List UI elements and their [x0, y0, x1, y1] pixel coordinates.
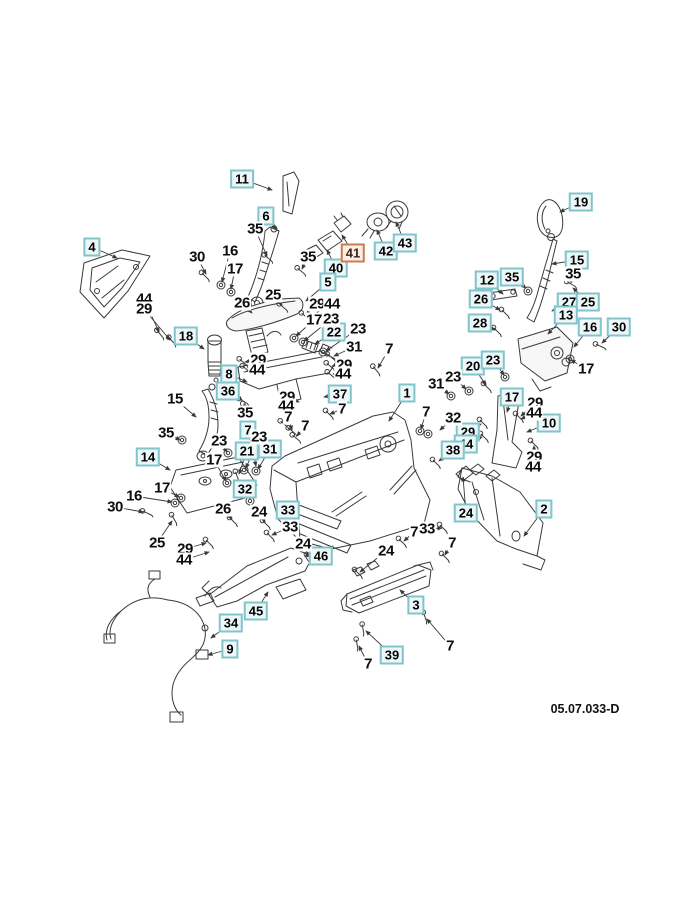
part-42-outline	[362, 213, 389, 238]
callout-26-label: 26	[233, 296, 251, 311]
callout-44-label: 44	[323, 297, 341, 312]
fastener-glyph	[263, 529, 276, 542]
callout-32-label: 32	[444, 411, 462, 426]
callout-33-link[interactable]: 33	[276, 501, 300, 520]
callout-33-label: 33	[281, 520, 299, 535]
callout-23-label: 23	[444, 370, 462, 385]
callout-7-label: 7	[384, 342, 394, 357]
part-9-harness-outline	[104, 571, 221, 722]
exploded-diagram	[0, 0, 688, 900]
fastener-glyph	[252, 467, 260, 475]
fastener-glyph	[501, 373, 509, 381]
callout-23-label: 23	[210, 434, 228, 449]
callout-38-link[interactable]: 38	[441, 441, 465, 460]
part-45-outline	[202, 548, 313, 607]
callout-2-link[interactable]: 2	[535, 500, 552, 519]
fastener-glyph	[395, 535, 408, 548]
fastener-glyph	[592, 341, 607, 351]
callout-44-label: 44	[525, 406, 543, 421]
fastener-glyph	[290, 334, 298, 342]
callout-44-label: 44	[175, 553, 193, 568]
callout-23-label: 23	[250, 430, 268, 445]
callout-12-link[interactable]: 12	[475, 271, 499, 290]
callout-24-link[interactable]: 24	[454, 504, 478, 523]
callout-24-label: 24	[250, 505, 268, 520]
callout-25-link[interactable]: 25	[576, 293, 600, 312]
callout-18-link[interactable]: 18	[174, 327, 198, 346]
fastener-glyph	[416, 427, 424, 435]
fastener-glyph	[370, 363, 383, 377]
fastener-glyph	[498, 306, 511, 319]
part-41-outline	[334, 213, 351, 232]
callout-1-link[interactable]: 1	[398, 384, 415, 403]
callout-35-label: 35	[564, 267, 582, 282]
fastener-glyph	[202, 536, 215, 549]
callout-31-label: 31	[427, 377, 445, 392]
callout-35-label: 35	[236, 406, 254, 421]
callout-17-label: 17	[226, 262, 244, 277]
callout-7-label: 7	[300, 419, 310, 434]
callout-23-label: 23	[322, 312, 340, 327]
fastener-glyph	[223, 479, 231, 487]
callout-3-link[interactable]: 3	[407, 596, 424, 615]
part-15-right-outline	[527, 229, 557, 322]
fastener-glyph	[447, 392, 455, 400]
callout-35-label: 35	[157, 426, 175, 441]
callout-30-label: 30	[106, 500, 124, 515]
callout-43-link[interactable]: 43	[393, 234, 417, 253]
fastener-glyph	[139, 508, 154, 518]
callout-25-label: 25	[148, 536, 166, 551]
callout-26-link[interactable]: 26	[469, 290, 493, 309]
callout-46-link[interactable]: 46	[309, 547, 333, 566]
callout-17-label: 17	[205, 453, 223, 468]
callout-5-link[interactable]: 5	[319, 273, 336, 292]
callout-29-label: 29	[135, 302, 153, 317]
callout-17-label: 17	[305, 313, 323, 328]
callout-17-label: 17	[577, 362, 595, 377]
callout-15-label: 15	[166, 392, 184, 407]
part-40-outline	[318, 231, 342, 251]
callout-24-label: 24	[294, 537, 312, 552]
callout-23-link[interactable]: 23	[481, 351, 505, 370]
callout-7-label: 7	[447, 536, 457, 551]
fastener-glyph	[171, 499, 179, 507]
callout-33-label: 33	[418, 522, 436, 537]
fastener-glyph	[524, 287, 532, 295]
callout-7-label: 7	[283, 410, 293, 425]
callout-35-link[interactable]: 35	[500, 268, 524, 287]
fastener-glyph	[353, 636, 360, 651]
callout-13-link[interactable]: 13	[554, 306, 578, 325]
callout-7-label: 7	[363, 657, 373, 672]
callout-4-link[interactable]: 4	[83, 238, 100, 257]
callout-7-label: 7	[445, 639, 455, 654]
parts-diagram-page: 1164404142431951535122627252813163018228…	[0, 0, 688, 900]
callout-23-label: 23	[349, 322, 367, 337]
part-11-outline	[283, 172, 299, 214]
fastener-glyph	[465, 387, 473, 395]
callout-7-label: 7	[421, 405, 431, 420]
callout-36-link[interactable]: 36	[216, 382, 240, 401]
fastener-glyph	[480, 380, 493, 393]
fastener-glyph	[322, 407, 335, 420]
callout-11-link[interactable]: 11	[230, 170, 254, 189]
callout-19-link[interactable]: 19	[569, 193, 593, 212]
callout-45-link[interactable]: 45	[244, 602, 268, 621]
callout-17-label: 17	[153, 481, 171, 496]
callout-28-link[interactable]: 28	[468, 314, 492, 333]
part-13-outline	[518, 327, 573, 391]
callout-16-link[interactable]: 16	[578, 318, 602, 337]
fastener-glyph	[438, 550, 451, 563]
callout-30-link[interactable]: 30	[607, 318, 631, 337]
callout-44-label: 44	[334, 367, 352, 382]
fastener-glyph	[217, 281, 225, 289]
callout-31-label: 31	[345, 340, 363, 355]
callout-41-link[interactable]: 41	[341, 244, 365, 263]
callout-17-link[interactable]: 17	[500, 388, 524, 407]
fastener-glyph	[512, 410, 525, 423]
callout-30-label: 30	[188, 250, 206, 265]
callout-7-label: 7	[337, 402, 347, 417]
callout-39-link[interactable]: 39	[380, 646, 404, 665]
callout-16-label: 16	[125, 489, 143, 504]
callout-16-label: 16	[221, 244, 239, 259]
callout-26-label: 26	[214, 502, 232, 517]
callout-32-link[interactable]: 32	[233, 480, 257, 499]
callout-34-link[interactable]: 34	[219, 614, 243, 633]
fastener-glyph	[224, 449, 232, 457]
callout-35-label: 35	[299, 250, 317, 265]
callout-25-label: 25	[264, 288, 282, 303]
callout-35-label: 35	[246, 222, 264, 237]
callout-44-label: 44	[248, 363, 266, 378]
fastener-glyph	[424, 430, 432, 438]
fastener-glyph	[294, 265, 308, 278]
callout-24-label: 24	[377, 544, 395, 559]
callout-44-label: 44	[524, 460, 542, 475]
callout-14-link[interactable]: 14	[136, 448, 160, 467]
drawing-number: 05.07.033-D	[551, 702, 620, 716]
callout-9-link[interactable]: 9	[221, 640, 238, 659]
fastener-glyph	[359, 621, 366, 636]
